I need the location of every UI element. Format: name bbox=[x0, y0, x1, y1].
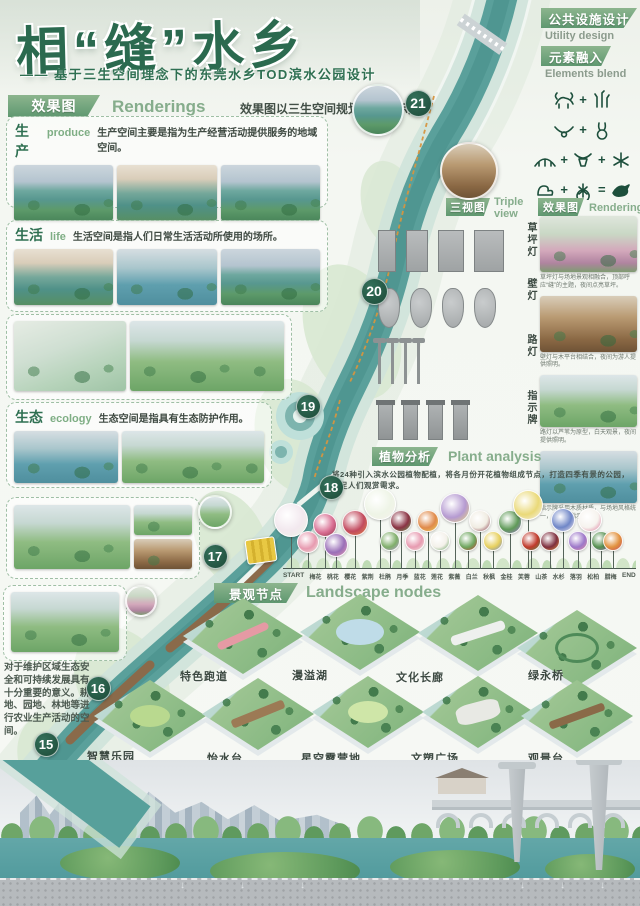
timeline-tick-label: 金桂 bbox=[500, 572, 512, 581]
duck-icon bbox=[533, 180, 557, 200]
bloom-photo-circle bbox=[469, 510, 491, 532]
house-sprite bbox=[438, 778, 486, 794]
triple-view-row: 指示牌 bbox=[378, 390, 538, 440]
plus-operator: + bbox=[579, 92, 587, 107]
utility-design-tag: 公共设施设计 bbox=[541, 8, 637, 28]
life-photo bbox=[14, 249, 113, 305]
bloom-stem bbox=[601, 549, 602, 569]
map-photo-inset bbox=[352, 84, 404, 136]
green-island bbox=[60, 846, 180, 880]
produce-photo bbox=[221, 165, 320, 221]
elements-blend-en: Elements blend bbox=[545, 68, 626, 80]
timeline-tick-label: 山茶 bbox=[535, 572, 547, 581]
soil-arrow: ↓ bbox=[180, 880, 185, 891]
bloom-stem bbox=[468, 549, 469, 569]
produce-section: 生产 produce 生产空间主要是指为生产经营活动提供服务的地域空间。 bbox=[6, 116, 328, 208]
buffalo-icon bbox=[552, 90, 576, 110]
soil-arrow: ↓ bbox=[300, 880, 305, 891]
park-photo-small bbox=[134, 505, 192, 535]
life-photo bbox=[117, 249, 216, 305]
produce-photo bbox=[117, 165, 216, 221]
viaduct-deck bbox=[432, 800, 640, 810]
poster-subtitle: —— 基于三生空间理念下的东莞水乡TOD滨水公园设计 bbox=[20, 64, 376, 83]
bloom-photo-circle bbox=[440, 493, 470, 523]
produce-desc: 生产空间主要是指为生产经营活动提供服务的地域空间。 bbox=[97, 124, 319, 154]
facility-rendering-photo bbox=[540, 375, 637, 427]
utility-design-en: Utility design bbox=[545, 30, 614, 42]
lawn-photos bbox=[4, 586, 126, 656]
timeline-tick-label: 紫荆 bbox=[362, 572, 374, 581]
ecology-photo-box-2 bbox=[6, 497, 200, 579]
facility-caption: 壁灯与木平台相结合，夜间为游人提供照明。 bbox=[540, 355, 637, 371]
facility-drawing bbox=[404, 338, 407, 384]
bird-icon bbox=[609, 180, 633, 200]
timeline-tick-label: 落羽 bbox=[570, 572, 582, 581]
timeline-tick-label: 水杉 bbox=[553, 572, 565, 581]
timeline-tick-label: 月季 bbox=[396, 572, 408, 581]
bloom-photo-circle bbox=[568, 531, 588, 551]
bloom-stem bbox=[440, 549, 441, 569]
bloom-stem bbox=[613, 549, 614, 569]
facility-drawing bbox=[417, 338, 420, 384]
life-desc: 生活空间是指人们日常生活活动所使用的场所。 bbox=[73, 228, 283, 243]
aerial-photo bbox=[14, 321, 126, 391]
facility-drawing bbox=[378, 230, 396, 272]
soil-arrow: ↓ bbox=[520, 880, 525, 891]
life-photo-box-2 bbox=[6, 314, 292, 400]
elements-blend-tag: 元素融入 bbox=[541, 46, 611, 66]
facility-drawing bbox=[378, 338, 381, 384]
wetland-photo bbox=[14, 505, 130, 569]
bloom-stem bbox=[401, 530, 402, 569]
map-photo-inset bbox=[440, 142, 498, 200]
soil-arrow: ↓ bbox=[600, 880, 605, 891]
horns-icon bbox=[552, 120, 576, 140]
soil-arrow: ↓ bbox=[240, 880, 245, 891]
produce-en: produce bbox=[47, 127, 90, 139]
facility-rendering-photo bbox=[540, 296, 637, 352]
bloom-stem bbox=[455, 521, 456, 569]
element-formula-row: + bbox=[530, 116, 636, 143]
timeline-end-label: END bbox=[622, 572, 636, 581]
triple-view-en: Triple view bbox=[494, 196, 536, 220]
facility-drawing bbox=[403, 404, 418, 440]
timeline-tick-label: 蓝花 bbox=[414, 572, 426, 581]
bloom-photo-circle bbox=[430, 531, 450, 551]
renderings2-tag: 效果图 bbox=[538, 198, 584, 216]
landscape-nodes-tag: 景观节点 bbox=[214, 583, 298, 603]
lotus-icon bbox=[571, 180, 595, 200]
plus-operator: + bbox=[598, 152, 606, 167]
timeline-tick-label: 莲花 bbox=[431, 572, 443, 581]
facility-caption: 草坪灯与场地景观相融合，顶部呼应“缝”的主题，夜间点亮草坪。 bbox=[540, 275, 637, 291]
bug-icon bbox=[609, 150, 633, 170]
bloom-stem bbox=[336, 555, 337, 569]
triple-view-drawings bbox=[378, 404, 515, 440]
bloom-stem bbox=[550, 549, 551, 569]
plus-operator: + bbox=[560, 182, 568, 197]
bloom-photo-circle bbox=[380, 531, 400, 551]
triple-view-drawings bbox=[378, 288, 515, 328]
timeline-tick-label: 梅花 bbox=[310, 572, 322, 581]
facility-rendering-photo bbox=[540, 216, 637, 272]
facility-drawing bbox=[406, 230, 428, 272]
bloom-photo-circle bbox=[458, 531, 478, 551]
facility-drawing bbox=[428, 404, 443, 440]
produce-label: 生产 bbox=[15, 121, 40, 161]
timeline-tick-label: 樱花 bbox=[344, 572, 356, 581]
triple-view-grid: 草坪灯壁灯路灯指示牌 bbox=[378, 222, 538, 440]
facility-label: 壁灯 bbox=[523, 278, 538, 328]
bloom-photo-circle bbox=[483, 531, 503, 551]
bloom-photo-circle bbox=[297, 531, 319, 553]
element-formula: +++++= bbox=[530, 86, 636, 203]
ecology-note: 对于维护区域生态安全和可持续发展具有十分重要的意义。耕地、园地、林地等进行农业生… bbox=[4, 662, 92, 739]
triple-view-row: 壁灯 bbox=[378, 278, 538, 328]
renderings-tag: 效果图 bbox=[8, 95, 100, 117]
bloom-stem bbox=[428, 530, 429, 569]
facility-drawing bbox=[474, 230, 504, 272]
facility-drawing bbox=[442, 288, 464, 328]
ecology-photo bbox=[14, 431, 118, 483]
timeline-tick-label: 白兰 bbox=[466, 572, 478, 581]
life-section: 生活 life 生活空间是指人们日常生活活动所使用的场所。 bbox=[6, 220, 328, 312]
ecology-section: 生态 ecology 生态空间是指具有生态防护作用。 bbox=[6, 402, 272, 488]
life-photos bbox=[7, 245, 327, 309]
triple-view-drawings bbox=[378, 230, 515, 272]
bloom-stem bbox=[308, 551, 309, 569]
timeline-tick-label: 杜鹃 bbox=[379, 572, 391, 581]
triple-view-drawings bbox=[378, 338, 515, 384]
element-formula-row: ++ bbox=[530, 146, 636, 173]
facility-drawing bbox=[378, 288, 400, 328]
ecology-desc: 生态空间是指具有生态防护作用。 bbox=[99, 410, 249, 425]
triple-view-row: 草坪灯 bbox=[378, 222, 538, 272]
bloom-photo-circle bbox=[540, 531, 560, 551]
park-photo-small bbox=[134, 539, 192, 569]
bloom-photo-circle bbox=[578, 508, 602, 532]
facility-label: 草坪灯 bbox=[523, 222, 538, 272]
timeline-tick-label: 松柏 bbox=[587, 572, 599, 581]
reeds-icon bbox=[590, 90, 614, 110]
facility-drawing bbox=[378, 404, 393, 440]
life-en: life bbox=[50, 231, 66, 243]
timeline-tick-label: 秋枫 bbox=[483, 572, 495, 581]
triple-view-row: 路灯 bbox=[378, 334, 538, 384]
ecology-photo bbox=[122, 431, 264, 483]
life-photo bbox=[221, 249, 320, 305]
facility-drawing bbox=[391, 338, 394, 384]
bloom-photo-circle bbox=[390, 510, 412, 532]
bloom-photo-circle bbox=[342, 510, 368, 536]
facility-drawing bbox=[438, 230, 464, 272]
bloom-photo-circle bbox=[521, 531, 541, 551]
bridge-pylon-cap bbox=[498, 762, 536, 769]
landscape-nodes-en: Landscape nodes bbox=[306, 584, 441, 602]
bloom-photo-circle bbox=[405, 531, 425, 551]
life-photos-2 bbox=[7, 315, 291, 395]
bloom-photo-circle bbox=[513, 490, 543, 520]
bloom-stem bbox=[493, 549, 494, 569]
bloom-timeline bbox=[283, 443, 636, 569]
yellow-pavilion-sprite bbox=[244, 536, 277, 565]
bloom-stem bbox=[480, 530, 481, 569]
bloom-photo-circle bbox=[417, 510, 439, 532]
bloom-stem bbox=[355, 534, 356, 569]
bloom-stem bbox=[390, 549, 391, 569]
bloom-stem bbox=[590, 530, 591, 569]
lawn-photo-box bbox=[3, 585, 127, 661]
lawn-photo bbox=[11, 592, 119, 652]
facility-label: 指示牌 bbox=[523, 390, 538, 440]
bloom-stem bbox=[291, 535, 292, 569]
bloom-stem bbox=[578, 549, 579, 569]
bloom-stem bbox=[415, 549, 416, 569]
bloom-stem bbox=[531, 549, 532, 569]
triple-view-tag: 三视图 bbox=[446, 198, 490, 216]
produce-photo bbox=[14, 165, 113, 221]
rabbit-icon bbox=[590, 120, 614, 140]
map-photo-inset bbox=[125, 585, 157, 617]
section-panorama: ↓↓↓↓↓↓ bbox=[0, 760, 640, 906]
poster-board: 相“缝”水乡 —— 基于三生空间理念下的东莞水乡TOD滨水公园设计 效果图 Re… bbox=[0, 0, 640, 906]
ecology-photos bbox=[7, 427, 271, 487]
timeline-start-label: START bbox=[283, 572, 304, 581]
bloom-stem bbox=[563, 530, 564, 569]
renderings2-en: Renderings bbox=[589, 202, 640, 214]
soil-arrow: ↓ bbox=[560, 880, 565, 891]
bloom-stem bbox=[510, 532, 511, 569]
ecology-label: 生态 bbox=[15, 407, 43, 427]
soil-section bbox=[0, 878, 640, 906]
facility-drawing bbox=[453, 404, 468, 440]
produce-photos bbox=[7, 161, 327, 225]
element-formula-row: + bbox=[530, 86, 636, 113]
plus-operator: + bbox=[579, 122, 587, 137]
bloom-photo-circle bbox=[551, 508, 575, 532]
waterfront-photo bbox=[130, 321, 284, 391]
facility-drawing bbox=[474, 288, 496, 328]
equals-operator: = bbox=[598, 182, 606, 197]
ecology-en: ecology bbox=[50, 413, 92, 425]
bloom-photo-circle bbox=[603, 531, 623, 551]
bridge-icon bbox=[533, 150, 557, 170]
facility-drawing bbox=[410, 288, 432, 328]
bloom-timeline-ticks: START梅花桃花樱花紫荆杜鹃月季蓝花莲花紫薇白兰秋枫金桂芙蓉山茶水杉落羽松柏腊… bbox=[283, 572, 636, 581]
timeline-tick-label: 腊梅 bbox=[605, 572, 617, 581]
ecology-photos-2 bbox=[7, 498, 199, 573]
life-label: 生活 bbox=[15, 225, 43, 245]
timeline-tick-label: 芙蓉 bbox=[518, 572, 530, 581]
bridge-pylon-cap bbox=[576, 760, 622, 765]
bloom-photo-circle bbox=[324, 533, 348, 557]
facility-label: 路灯 bbox=[523, 334, 538, 384]
renderings-en: Renderings bbox=[112, 97, 206, 117]
timeline-tick-label: 桃花 bbox=[327, 572, 339, 581]
bull-icon bbox=[571, 150, 595, 170]
timeline-tick-label: 紫薇 bbox=[448, 572, 460, 581]
map-photo-inset bbox=[198, 495, 232, 529]
pond-ring bbox=[293, 409, 307, 423]
plus-operator: + bbox=[560, 152, 568, 167]
